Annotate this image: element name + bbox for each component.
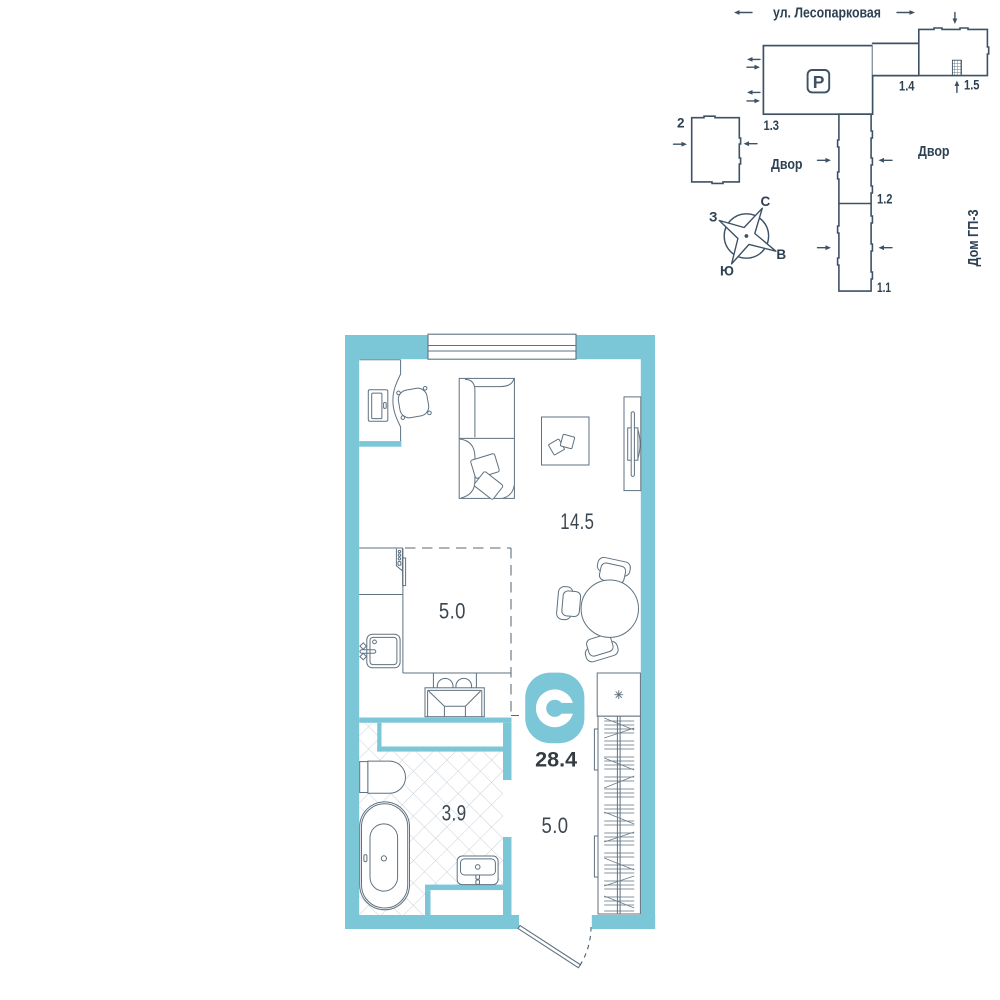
svg-text:Дом ГП-3: Дом ГП-3 xyxy=(966,210,982,267)
svg-text:1.1: 1.1 xyxy=(877,280,891,295)
svg-text:5.0: 5.0 xyxy=(439,599,466,624)
svg-text:28.4: 28.4 xyxy=(535,748,577,772)
svg-text:С: С xyxy=(761,194,771,209)
svg-text:ул. Лесопарковая: ул. Лесопарковая xyxy=(773,6,881,22)
svg-text:14.5: 14.5 xyxy=(560,509,594,534)
svg-text:2: 2 xyxy=(677,116,685,131)
svg-text:В: В xyxy=(776,247,786,262)
svg-text:1.4: 1.4 xyxy=(899,79,915,94)
svg-text:Двор: Двор xyxy=(771,157,803,173)
svg-text:P: P xyxy=(813,72,825,92)
svg-text:1.5: 1.5 xyxy=(964,78,980,93)
svg-text:Ю: Ю xyxy=(720,263,734,278)
svg-text:Двор: Двор xyxy=(918,144,950,160)
svg-text:З: З xyxy=(709,209,717,224)
svg-text:3.9: 3.9 xyxy=(442,801,467,826)
svg-text:5.0: 5.0 xyxy=(542,813,569,838)
svg-text:1.3: 1.3 xyxy=(764,118,780,133)
svg-text:1.2: 1.2 xyxy=(877,192,893,207)
